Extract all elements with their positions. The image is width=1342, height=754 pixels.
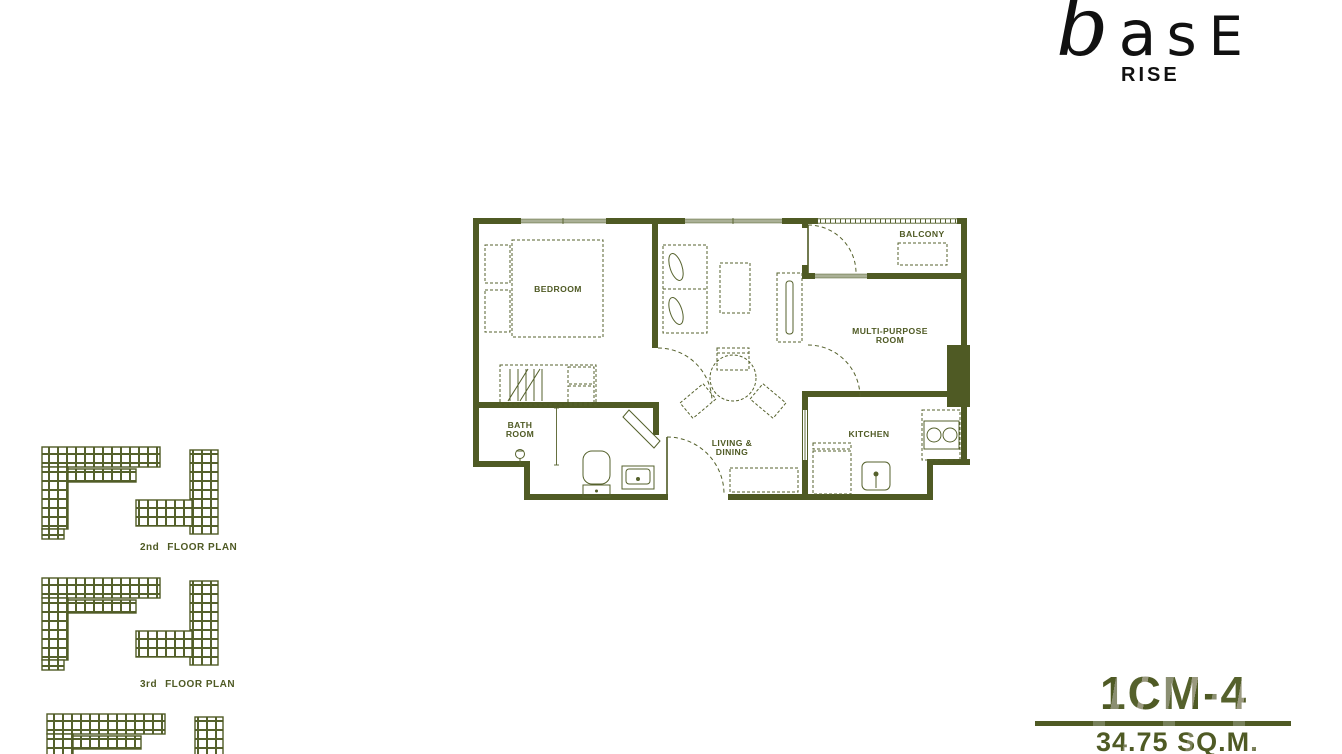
floor-number: 2nd	[140, 542, 159, 553]
console-cabinet	[730, 468, 798, 492]
bedside-unit	[485, 290, 510, 332]
sofa	[663, 245, 707, 333]
logo-letter-b: b	[1056, 0, 1109, 75]
tv-console	[777, 273, 802, 342]
unit-divider-line	[1035, 721, 1291, 726]
brand-sub-logo: RISE	[1121, 64, 1180, 87]
kitchen-label: KITCHEN	[849, 429, 890, 439]
balcony-unit	[898, 243, 947, 265]
keyplan-2nd-floor: 2ndFLOOR PLAN	[40, 445, 275, 560]
dining-set	[680, 348, 786, 418]
basin	[622, 466, 654, 489]
balcony-door-arc	[808, 225, 856, 273]
floor-number: 3rd	[140, 679, 157, 690]
floor-plan-text: FLOOR PLAN	[165, 679, 235, 690]
bedroom-label: BEDROOM	[534, 284, 582, 294]
logo-letter-e: E	[1209, 5, 1244, 68]
keyplan-2nd-floor-label: 2ndFLOOR PLAN	[140, 542, 237, 553]
walls-layer	[473, 218, 970, 500]
bedroom-door-arc	[658, 348, 712, 402]
balcony-label: BALCONY	[899, 229, 944, 239]
floor-plan-page: b a s E RISE	[0, 0, 1342, 754]
doors-layer	[658, 225, 860, 494]
keyplan-3rd-floor-label: 3rdFLOOR PLAN	[140, 679, 235, 690]
keyplan-partial	[45, 712, 280, 754]
unit-floor-plan-drawing: BEDROOM BATH ROOM LIVING & DINING KITCHE…	[470, 205, 970, 505]
coffee-table	[720, 263, 750, 313]
kitchen-sink	[862, 462, 890, 490]
bathroom-label-line2: ROOM	[506, 429, 534, 439]
unit-type-code: 1CM-4	[1100, 670, 1248, 716]
unit-area: 34.75 SQ.M.	[1096, 728, 1259, 754]
living-label-line2: DINING	[716, 447, 748, 457]
bedside-unit	[485, 245, 510, 283]
wardrobe	[500, 365, 596, 405]
keyplan-3rd-floor: 3rdFLOOR PLAN	[40, 573, 275, 695]
multipurpose-label-line2: ROOM	[876, 335, 904, 345]
fridge	[813, 443, 851, 494]
toilet	[583, 451, 610, 497]
logo-letter-s: s	[1167, 1, 1197, 69]
floor-plan-text: FLOOR PLAN	[167, 542, 237, 553]
keyplan-buildings-drawing	[40, 445, 270, 541]
logo-letter-a: a	[1119, 0, 1157, 70]
keyplan-buildings-drawing	[40, 573, 270, 675]
multipurpose-door-arc	[808, 345, 860, 397]
keyplan-buildings-drawing	[45, 712, 275, 754]
stove	[922, 410, 960, 460]
